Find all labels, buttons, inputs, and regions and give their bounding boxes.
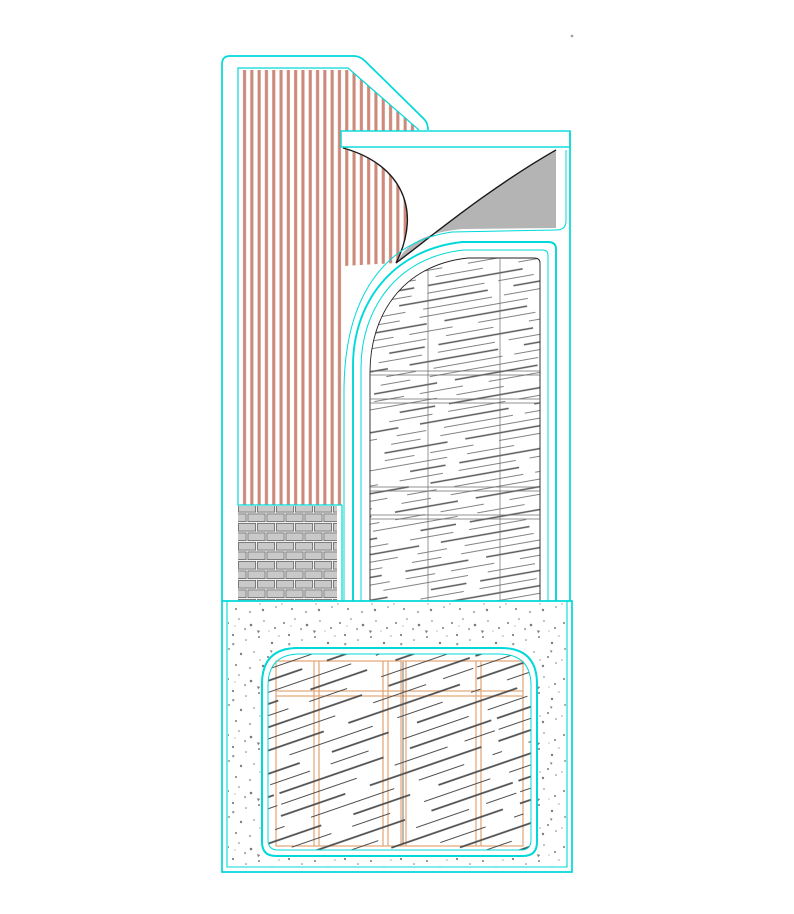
stray-speck-dot	[571, 35, 574, 38]
cad-drawing-canvas	[0, 0, 794, 914]
brick-region	[238, 506, 337, 601]
cad-drawing	[0, 0, 794, 914]
inner-panel-hatch	[262, 648, 537, 856]
fascia-band	[341, 131, 570, 147]
arch-hatch-region	[370, 258, 540, 601]
